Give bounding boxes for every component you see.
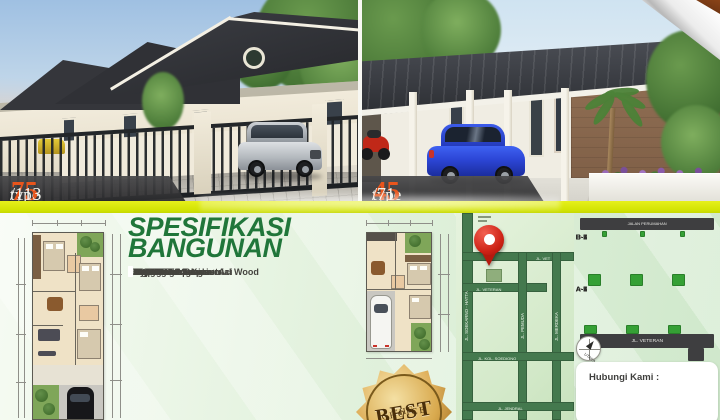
plan-outline [32, 232, 104, 420]
dim-tick [410, 220, 411, 226]
wardrobe [33, 235, 41, 279]
road-label: JL. KOL. SOEDIONO [478, 356, 516, 361]
road-label: JL. SOEKARNO - HATTA [464, 291, 469, 341]
road-label: JALAN PERUMAHAN [627, 222, 666, 226]
road-stub [688, 348, 704, 361]
tail-light [429, 150, 434, 158]
location-pin-icon [474, 225, 504, 269]
plant [43, 403, 55, 415]
wheel [296, 160, 313, 177]
wheel [248, 160, 265, 177]
garden [77, 233, 103, 257]
siteplan-top-road: JALAN PERUMAHAN [580, 218, 714, 230]
terrace [33, 365, 104, 385]
lot: B-1 [580, 236, 582, 238]
road-label: JL. MERDEKA [554, 312, 559, 341]
sofa [38, 329, 60, 341]
dim-tick [16, 284, 26, 285]
dim-tick [110, 380, 122, 381]
dimension-line [120, 234, 121, 418]
pillow [80, 332, 88, 337]
dim-tick [16, 334, 26, 335]
bed [407, 263, 431, 285]
dimension-line [366, 358, 432, 359]
dim-tick [110, 274, 122, 275]
plant [35, 389, 48, 402]
dimension-line [366, 223, 432, 224]
dim-tick [32, 220, 33, 226]
plant [409, 235, 421, 247]
wall [367, 289, 432, 290]
pin-hole [484, 234, 495, 245]
gate-pillar [194, 111, 211, 194]
wall [33, 325, 63, 326]
garden [411, 323, 432, 352]
dimension-line [448, 234, 449, 352]
garden-mark [668, 325, 681, 334]
pillow [412, 298, 419, 302]
plan-outline [366, 232, 432, 352]
bathroom [79, 305, 99, 321]
spec-title-line2: BANGUNAN [128, 233, 282, 263]
dimension-line [24, 238, 25, 418]
wall [395, 233, 396, 289]
pillow [46, 244, 53, 249]
kitchen-counter [367, 233, 397, 241]
dim-tick [110, 324, 122, 325]
spec-row: Listrik:1300 Watt [128, 266, 133, 277]
pillow [82, 266, 89, 271]
silver-suv [238, 120, 324, 182]
shrub [142, 72, 184, 130]
bathroom [391, 275, 405, 289]
dimension-line [32, 223, 106, 224]
garden-mark [672, 274, 685, 286]
plant [414, 327, 426, 339]
contact-card: Hubungi Kami : [576, 362, 718, 420]
car-windows [445, 127, 501, 142]
contact-heading: Hubungi Kami : [589, 372, 659, 383]
dining-table [371, 261, 385, 275]
garden-mark [626, 325, 639, 334]
gable-vent [243, 47, 265, 69]
map-note-line [478, 216, 491, 218]
bed [43, 241, 65, 271]
site-plan: JALAN PERUMAHAN B-7 B-6 B-5 B-3 B-2 B-1 … [576, 212, 718, 362]
spec-title: SPESIFIKASI BANGUNAN [128, 217, 368, 259]
front-door [529, 95, 544, 157]
road-label: JL. VETERAN [631, 339, 662, 344]
dim-tick [81, 220, 82, 226]
wall [33, 291, 75, 292]
garden-mark [584, 325, 597, 334]
wardrobe [405, 255, 431, 262]
brochure-page: type 75 /113 type 45 /71 [0, 0, 720, 420]
white-car-topview [370, 295, 392, 349]
plant [90, 242, 100, 252]
best-choice-badge: THE BEST CHOICE [356, 364, 452, 420]
wheel [361, 148, 373, 160]
badge-seal: THE BEST CHOICE [360, 368, 448, 420]
road-label: JL. JENDRAL [498, 406, 523, 411]
front-garden [33, 385, 59, 420]
dim-tick [366, 220, 367, 226]
dim-tick [438, 314, 450, 315]
plant [419, 339, 430, 350]
floorplan-type75 [8, 214, 128, 420]
dimension-line [440, 234, 441, 352]
black-car-topview [67, 387, 94, 420]
image-divider [358, 0, 362, 205]
lot: A-1 [580, 288, 582, 290]
bed [409, 295, 431, 319]
road-label: JL. PEMUDA [520, 313, 525, 339]
pillow [410, 266, 417, 270]
map-note-line [478, 220, 487, 222]
wall [75, 253, 76, 365]
dim-tick [57, 220, 58, 226]
lot-row-a: A-7 A-6 A-5 A-3 A-2 A-1 [580, 288, 714, 324]
dim-tick [438, 274, 450, 275]
dim-tick [16, 382, 26, 383]
bed [79, 263, 101, 291]
bed [77, 329, 101, 359]
bike-seat [367, 130, 381, 138]
road-label: JL. VET [536, 256, 550, 261]
lot-row-b: B-7 B-6 B-5 B-3 B-2 B-1 [580, 236, 714, 272]
suv-grille [310, 150, 321, 159]
carport-post [561, 88, 569, 202]
site-location-block [486, 269, 502, 282]
road-horizontal-site [462, 283, 547, 292]
windshield [374, 304, 388, 313]
tail-light [385, 345, 389, 347]
wheel [378, 148, 390, 160]
pillow [420, 266, 427, 270]
floorplan-type45 [356, 214, 458, 366]
compass-icon: UTARA [576, 336, 601, 361]
garden-mark [630, 274, 643, 286]
garden-mark [588, 274, 601, 286]
windshield [70, 394, 90, 402]
tv-cabinet [38, 351, 56, 356]
dimension-line [112, 234, 113, 418]
road-label: JL. VETERAN [476, 287, 501, 292]
pillow [92, 266, 99, 271]
dining-table [47, 297, 63, 311]
suv-windows [251, 125, 303, 138]
location-map: JL. VET JL. VETERAN JL. KOL. SOEDIONO JL… [456, 213, 574, 420]
tail-light [373, 345, 377, 347]
dimension-line [18, 238, 19, 418]
garden [405, 233, 431, 253]
dim-tick [388, 220, 389, 226]
dim-tick [432, 220, 433, 226]
pillow [56, 244, 63, 249]
dim-tick [105, 220, 106, 226]
